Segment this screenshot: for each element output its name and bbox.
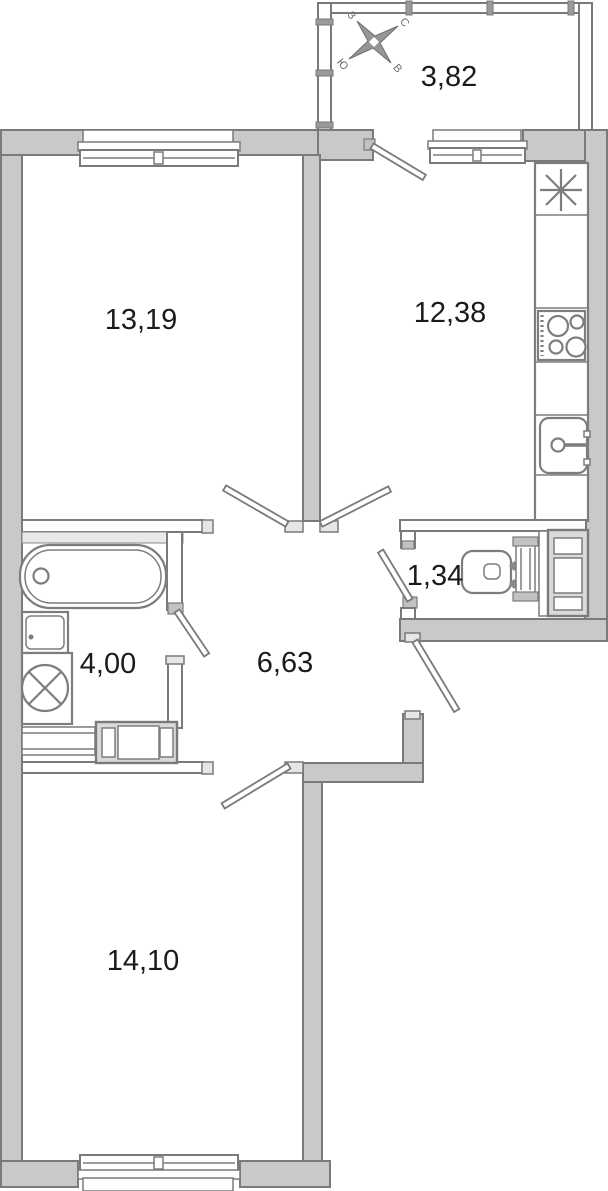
kitchen-sink-icon [540, 418, 590, 473]
wardrobe-icon [96, 722, 177, 763]
compass-south: Ю [334, 57, 350, 73]
label-balcony-area: 3,82 [421, 61, 477, 93]
label-hallway-area: 6,63 [257, 647, 313, 679]
label-bedroom-area: 14,10 [107, 945, 180, 977]
wall-bedroom-right [303, 782, 322, 1162]
label-bathroom-area: 4,00 [80, 648, 136, 680]
door-leaf-entry [412, 639, 459, 712]
wall-under-living [22, 520, 203, 532]
vent-shaft-icon [548, 530, 588, 616]
washing-machine-icon [22, 653, 72, 724]
door-leaf-bedroom [222, 763, 291, 808]
door-leaf-balcony [370, 143, 425, 180]
wc-left-bottom [401, 608, 415, 619]
balcony-rail-right [579, 3, 592, 130]
window-living [78, 130, 240, 166]
wall-left [1, 130, 22, 1187]
bathroom-sink-icon [22, 612, 68, 653]
wall-bottom-right [240, 1161, 330, 1187]
label-living-area: 13,19 [105, 304, 178, 336]
compass-north: С [397, 16, 411, 30]
window-kitchen [428, 130, 527, 163]
bathroom-wall-lower [168, 658, 182, 728]
kitchen-cabinets [535, 163, 590, 521]
wc-inner-partition [539, 531, 548, 616]
floor-plan: С З Ю В [0, 0, 608, 1191]
stove-icon [538, 311, 586, 360]
bathroom-wall-upper [167, 532, 182, 610]
shelf-icon [22, 727, 95, 755]
label-wc-area: 1,34 [407, 560, 463, 592]
bathroom-top-band [22, 532, 183, 543]
door-leaf-kitchen [320, 486, 391, 526]
wall-entry-jamb [403, 714, 423, 764]
toilet-icon [462, 551, 519, 593]
bathtub-icon [20, 545, 166, 608]
wall-hall-bottom [303, 763, 423, 782]
wc-fixtures [462, 530, 588, 616]
wall-wc-bottom [400, 619, 607, 641]
wall-bottom-left [1, 1161, 78, 1187]
label-kitchen-area: 12,38 [414, 297, 487, 329]
cistern-icon [513, 537, 538, 601]
door-leaf-bathroom [175, 609, 210, 656]
compass-rose-icon: С З Ю В [334, 9, 411, 75]
fridge-icon [540, 169, 582, 211]
window-bedroom [78, 1155, 240, 1191]
door-leaf-living [223, 485, 288, 526]
balcony-rail-top [318, 3, 592, 13]
wall-center [303, 155, 320, 521]
compass-east: В [390, 62, 404, 75]
